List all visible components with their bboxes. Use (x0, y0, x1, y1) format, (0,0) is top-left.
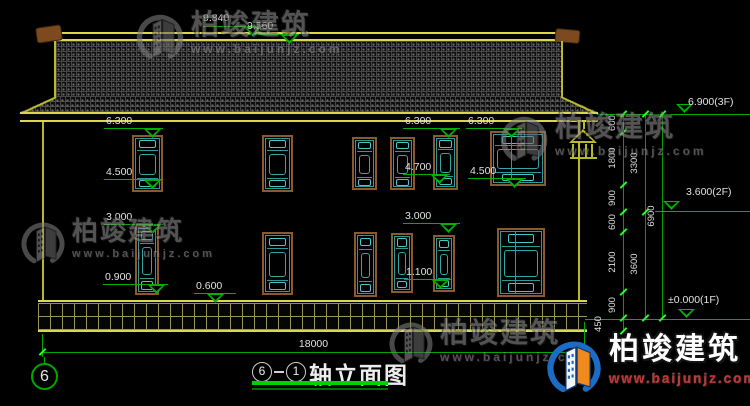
elevation-label: 0.600 (196, 280, 222, 292)
window (354, 232, 377, 297)
site-logo-url: www.baijunjz.com (609, 371, 750, 386)
watermark-brand: 柏竣建筑 (555, 112, 707, 141)
watermark-left: 柏竣建筑 www.baijunjz.com (18, 218, 215, 268)
roof-lower-flare (20, 97, 598, 112)
window (352, 137, 377, 190)
elevation-line (403, 174, 450, 175)
elevation-label: 4.700 (405, 161, 431, 173)
watermark-right: 柏竣建筑 www.baijunjz.com (497, 112, 707, 166)
elevation-line (104, 179, 163, 180)
dimension-chain-label: 6900 (645, 196, 659, 236)
elevation-line (103, 284, 168, 285)
title-axis-circle-start: 6 (252, 362, 272, 382)
elevation-line (404, 279, 451, 280)
window (262, 135, 293, 192)
watermark-url: www.baijunjz.com (191, 42, 343, 56)
elevation-label: 6.300 (405, 115, 431, 127)
baijun-logo-icon (18, 218, 68, 268)
title-axis-circle-end: 1 (286, 362, 306, 382)
elevation-label: 3.000 (405, 210, 431, 222)
dimension-tick (642, 314, 650, 322)
elevation-line (403, 223, 460, 224)
elevation-line (468, 178, 526, 179)
elevation-line (194, 293, 236, 294)
title-dash (274, 371, 284, 373)
window (497, 228, 545, 297)
window (433, 135, 458, 190)
dimension-tick (659, 314, 667, 322)
elevation-label: 4.500 (106, 166, 132, 178)
dimension-chain-label: 900 (606, 285, 620, 325)
elevation-line (403, 128, 460, 129)
cad-elevation-drawing: 18000 6 6 1 轴立面图 柏竣建筑 www.baijunjz.com 柏… (0, 0, 750, 406)
watermark-url: www.baijunjz.com (555, 144, 707, 158)
elevation-label: 3.600(2F) (686, 186, 732, 198)
title-underline-thick (252, 381, 388, 385)
window (391, 233, 413, 293)
baijun-logo-icon-colored (543, 334, 605, 400)
dimension-chain-label: 600 (606, 202, 620, 242)
site-logo: 柏竣建筑 www.baijunjz.com (543, 334, 750, 400)
dimension-chain-label: 2100 (606, 242, 620, 282)
watermark-brand: 柏竣建筑 (72, 218, 215, 245)
elevation-line (104, 128, 163, 129)
watermark-brand: 柏竣建筑 (191, 10, 343, 39)
grid-bubble-6: 6 (31, 363, 58, 390)
dimension-chain-label: 3600 (628, 244, 642, 284)
elevation-line (655, 211, 750, 212)
baijun-logo-icon (386, 318, 436, 368)
elevation-label: 4.500 (470, 165, 496, 177)
elevation-label: ±0.000(1F) (668, 294, 719, 306)
baijun-logo-icon (497, 112, 551, 166)
baijun-logo-icon (133, 10, 187, 64)
watermark-top: 柏竣建筑 www.baijunjz.com (133, 10, 343, 64)
elevation-label: 1.100 (406, 266, 432, 278)
elevation-label: 6.300 (468, 115, 494, 127)
elevation-label: 0.900 (105, 271, 131, 283)
plinth-top-line (38, 300, 587, 302)
wall-left-edge (42, 122, 44, 302)
elevation-label: 6.300 (106, 115, 132, 127)
site-logo-brand: 柏竣建筑 (609, 334, 750, 366)
window (262, 232, 293, 295)
elevation-label: 6.900(3F) (688, 96, 734, 108)
title-underline-thin (252, 388, 388, 390)
watermark-url: www.baijunjz.com (72, 248, 215, 260)
